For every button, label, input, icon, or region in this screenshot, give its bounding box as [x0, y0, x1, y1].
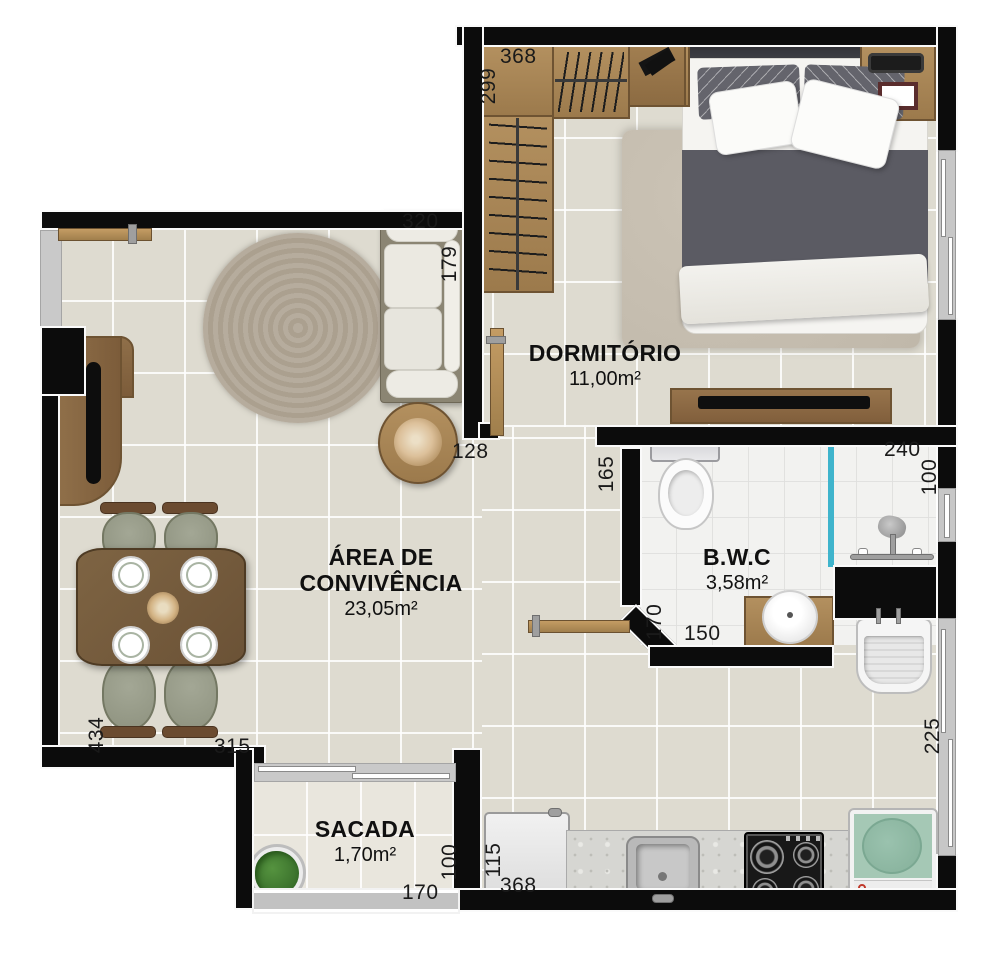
round-rug — [203, 233, 393, 423]
wall-bedroom-top — [455, 25, 958, 47]
laundry-faucet-left — [876, 608, 881, 624]
dim-living-depth: 434 — [85, 712, 109, 758]
kitchen-faucet — [652, 894, 674, 903]
bedroom-door-leaf — [490, 328, 504, 436]
dim-living-width: 315 — [214, 735, 251, 759]
dim-shower-width: 240 — [884, 438, 921, 462]
wall-left-chunk — [40, 326, 86, 396]
bedroom-door-handle — [486, 336, 506, 344]
nightstand-right-tray — [868, 53, 924, 73]
window-pane — [948, 739, 953, 847]
plate — [180, 556, 218, 594]
dim-hall-depth: 165 — [595, 451, 619, 497]
bathroom-sink-drain — [787, 612, 793, 618]
kitchen-sink-drain — [658, 872, 667, 881]
plate — [180, 626, 218, 664]
window-pane — [944, 494, 950, 538]
wall-right-lower — [936, 540, 958, 620]
dim-closet-depth: 299 — [477, 63, 501, 109]
shower-glass — [828, 447, 834, 567]
wardrobe-rod-top — [555, 79, 627, 82]
dim-hall-width: 128 — [452, 440, 489, 464]
wall-right-upper — [936, 25, 958, 152]
toilet-bowl-inner — [668, 470, 704, 516]
wall-bathroom-bottom — [648, 645, 834, 668]
room-label-sacada: SACADA 1,70m² — [265, 816, 465, 867]
room-area-sacada: 1,70m² — [265, 844, 465, 867]
shower-pipe — [890, 534, 896, 556]
dim-sofa-depth: 179 — [438, 241, 462, 287]
dim-bwc-door: 170 — [643, 599, 667, 645]
sofa-armrest-bottom — [386, 370, 458, 398]
wall-left — [40, 394, 60, 748]
laundry-tub-basin — [864, 636, 924, 684]
room-name-dormitorio: DORMITÓRIO — [505, 340, 705, 367]
bed-pillow-white-left — [708, 80, 805, 157]
balcony-door-pane-2 — [352, 773, 450, 779]
room-area-bwc: 3,58m² — [662, 572, 812, 595]
room-name-sacada: SACADA — [265, 816, 465, 843]
room-label-bwc: B.W.C 3,58m² — [662, 544, 812, 595]
dim-closet-width: 368 — [500, 45, 537, 69]
bedroom-tv — [698, 396, 870, 409]
wardrobe-hangers-top-icon — [558, 52, 624, 112]
wardrobe-rod-side — [516, 118, 519, 290]
wall-bathroom-left — [620, 447, 642, 607]
stove-burner-large — [750, 840, 784, 874]
room-name-convivencia: ÁREA DE CONVIVÊNCIA — [276, 544, 486, 597]
dim-sofa-width: 320 — [402, 210, 439, 234]
room-label-convivencia: ÁREA DE CONVIVÊNCIA 23,05m² — [276, 544, 486, 621]
wall-shower-block — [833, 565, 938, 620]
chair-seat-bottom-1 — [102, 658, 156, 730]
plate — [112, 626, 150, 664]
room-name-bwc: B.W.C — [662, 544, 812, 571]
table-centerpiece — [147, 592, 179, 624]
bathroom-door-handle — [532, 615, 540, 637]
shower-mixer-bar — [850, 554, 934, 560]
bathroom-door-leaf — [528, 620, 630, 633]
chair-seat-bottom-2 — [164, 658, 218, 730]
entry-door-handle — [128, 224, 137, 244]
floor-plan: DORMITÓRIO 11,00m² ÁREA DE CONVIVÊNCIA 2… — [0, 0, 1000, 968]
room-area-dormitorio: 11,00m² — [505, 368, 705, 391]
living-tv — [86, 362, 101, 484]
chair-back-bottom-2 — [162, 726, 218, 738]
balcony-door-pane-1 — [258, 766, 356, 772]
dim-service-depth: 225 — [921, 713, 945, 759]
window-pane — [948, 237, 953, 315]
room-area-convivencia: 23,05m² — [276, 598, 486, 621]
room-label-dormitorio: DORMITÓRIO 11,00m² — [505, 340, 705, 391]
dim-shower-depth: 100 — [918, 454, 942, 500]
side-table-flowers — [394, 418, 442, 466]
washing-machine-lid — [862, 818, 922, 874]
laundry-faucet-right — [896, 608, 901, 624]
dim-sacada-width: 170 — [402, 881, 439, 905]
wall-living-top — [40, 210, 464, 230]
dim-kitchen-width: 368 — [500, 874, 537, 898]
sofa-seat-cushion-2 — [384, 308, 442, 370]
bedroom-window — [938, 150, 956, 320]
stove-burner — [793, 842, 819, 868]
window-pane — [941, 159, 946, 237]
fridge-handle — [548, 808, 562, 817]
dim-sacada-depth: 100 — [438, 839, 462, 885]
sofa-seat-cushion-1 — [384, 244, 442, 308]
entry-door-leaf — [58, 228, 152, 241]
stove-knobs — [786, 836, 822, 841]
dim-bwc-width: 150 — [684, 622, 721, 646]
kitchen-sink-basin — [636, 844, 690, 890]
plate — [112, 556, 150, 594]
entry-threshold — [40, 230, 62, 328]
wall-balcony-left — [234, 748, 254, 910]
